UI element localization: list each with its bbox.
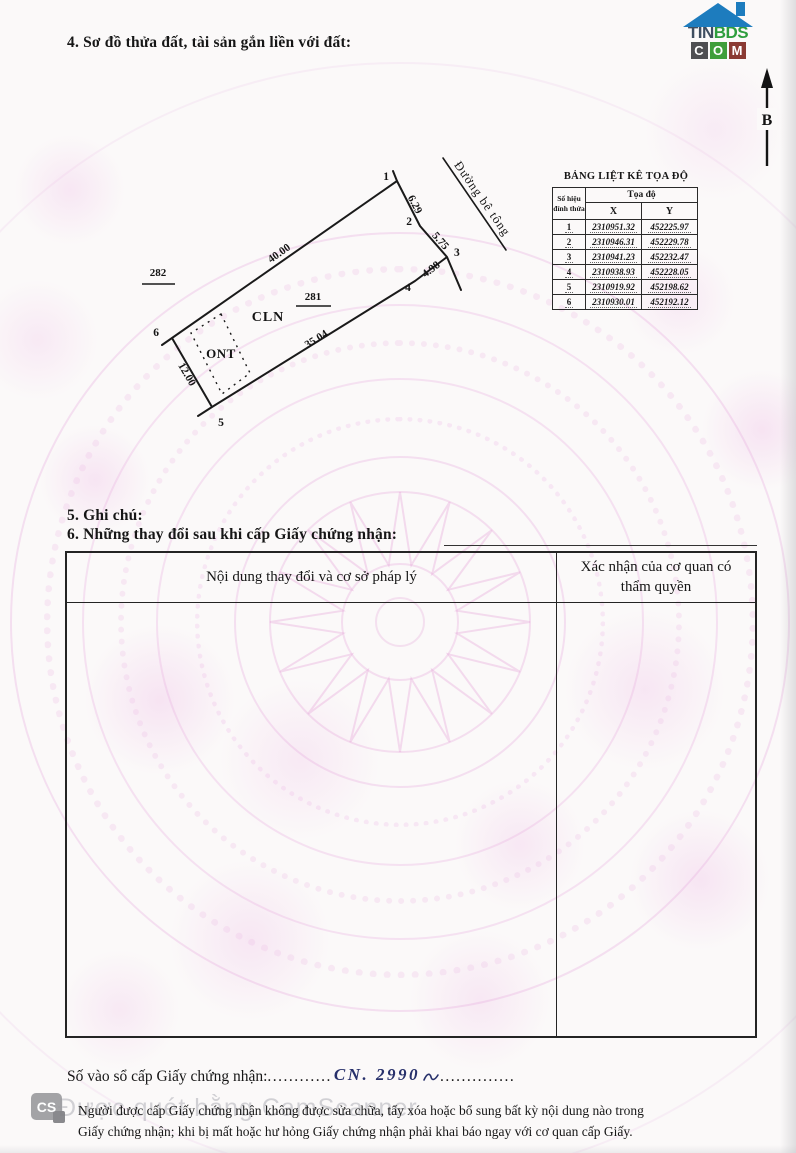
coord-cell: 452229.78 bbox=[648, 237, 690, 248]
registry-dots: ............ bbox=[267, 1068, 332, 1085]
coord-cell: 452228.05 bbox=[648, 267, 690, 278]
coord-row: 3 2310941.23 452232.47 bbox=[553, 250, 698, 265]
section6-rule bbox=[444, 545, 757, 546]
coord-table-title: BẢNG LIỆT KÊ TỌA ĐỘ bbox=[552, 171, 700, 182]
changes-confirm-cell bbox=[557, 603, 755, 1036]
land-type-ont: ONT bbox=[206, 346, 236, 361]
coord-cell: 2 bbox=[565, 237, 574, 248]
vertex-label-2: 2 bbox=[406, 216, 412, 228]
coord-header-vertex: Số hiệu đỉnh thửa bbox=[553, 188, 586, 220]
registry-value-handwritten: CN. 2990 bbox=[332, 1065, 422, 1084]
coord-row: 1 2310951.32 452225.97 bbox=[553, 220, 698, 235]
coord-row: 6 2310930.01 452192.12 bbox=[553, 295, 698, 310]
camscanner-badge: CS bbox=[31, 1093, 62, 1120]
road-label: Đường bê tông bbox=[451, 159, 513, 239]
plot-diagram: 1 2 3 4 5 6 6.29 5.75 4.98 35.04 12.00 4… bbox=[120, 150, 540, 450]
logo-letterboxes: C O M bbox=[681, 42, 755, 59]
coord-header-y: Y bbox=[642, 203, 698, 220]
registry-label: Số vào sổ cấp Giấy chứng nhận: bbox=[67, 1068, 267, 1085]
section4-title: 4. Sơ đồ thửa đất, tài sản gắn liền với … bbox=[67, 34, 351, 52]
coord-cell: 2310938.93 bbox=[590, 267, 637, 278]
vertex-label-5: 5 bbox=[218, 417, 224, 429]
scan-edge-shadow bbox=[780, 0, 796, 1153]
coord-row: 2 2310946.31 452229.78 bbox=[553, 235, 698, 250]
logo-letterbox-c: C bbox=[691, 42, 708, 59]
vertex-label-3: 3 bbox=[454, 247, 460, 259]
north-arrow: B bbox=[752, 66, 782, 172]
vertex-label-6: 6 bbox=[153, 327, 159, 339]
land-type-cln: CLN bbox=[252, 310, 285, 325]
section5-title: 5. Ghi chú: bbox=[67, 507, 143, 525]
coord-cell: 2310941.23 bbox=[590, 252, 637, 263]
coord-cell: 2310919.92 bbox=[590, 282, 637, 293]
coord-cell: 452232.47 bbox=[648, 252, 690, 263]
coord-cell: 2310951.32 bbox=[590, 222, 637, 233]
notice-text: Người được cấp Giấy chứng nhận không đượ… bbox=[78, 1101, 750, 1143]
arrowhead-icon bbox=[761, 68, 773, 88]
coord-header-x: X bbox=[586, 203, 642, 220]
coord-cell: 5 bbox=[565, 282, 574, 293]
scan-bottom-shadow bbox=[0, 1145, 796, 1153]
coord-row: 5 2310919.92 452198.62 bbox=[553, 280, 698, 295]
house-roof-icon bbox=[683, 2, 753, 27]
north-label: B bbox=[762, 112, 773, 129]
coord-row: 4 2310938.93 452228.05 bbox=[553, 265, 698, 280]
coord-cell: 4 bbox=[565, 267, 574, 278]
coord-cell: 452192.12 bbox=[648, 297, 690, 308]
road-line bbox=[443, 158, 506, 250]
changes-col-confirm-header: Xác nhận của cơ quan có thẩm quyền bbox=[557, 553, 755, 603]
logo-letterbox-m: M bbox=[729, 42, 746, 59]
vertex-label-1: 1 bbox=[383, 171, 389, 183]
coord-cell: 452198.62 bbox=[648, 282, 690, 293]
logo-letterbox-o: O bbox=[710, 42, 727, 59]
changes-table: Nội dung thay đổi và cơ sở pháp lý Xác n… bbox=[65, 551, 757, 1038]
edge-length-4-5: 35.04 bbox=[303, 328, 331, 352]
coord-cell: 1 bbox=[565, 222, 574, 233]
notice-line-2: Giấy chứng nhận; khi bị mất hoặc hư hỏng… bbox=[78, 1122, 750, 1143]
vertex-label-4: 4 bbox=[405, 282, 411, 294]
coord-cell: 2310946.31 bbox=[590, 237, 637, 248]
registry-line: Số vào sổ cấp Giấy chứng nhận:..........… bbox=[67, 1066, 515, 1086]
section6-title: 6. Những thay đổi sau khi cấp Giấy chứng… bbox=[67, 526, 397, 544]
edge-length-1-2: 6.29 bbox=[405, 193, 425, 216]
coord-header-coord: Tọa độ bbox=[586, 188, 698, 203]
certificate-page: 4. Sơ đồ thửa đất, tài sản gắn liền với … bbox=[0, 0, 796, 1153]
coordinate-table: BẢNG LIỆT KÊ TỌA ĐỘ Số hiệu đỉnh thửa Tọ… bbox=[552, 171, 700, 310]
registry-dots: .............. bbox=[440, 1068, 515, 1085]
coord-cell: 2310930.01 bbox=[590, 297, 637, 308]
tinbds-logo: TINBDS C O M bbox=[681, 2, 755, 66]
notice-line-1: Người được cấp Giấy chứng nhận không đượ… bbox=[78, 1101, 750, 1122]
adjacent-plot-282: 282 bbox=[150, 267, 167, 279]
edge-length-2-3: 5.75 bbox=[429, 230, 451, 253]
coord-cell: 3 bbox=[565, 252, 574, 263]
changes-content-cell bbox=[67, 603, 557, 1036]
edge-length-5-6: 12.00 bbox=[175, 361, 198, 389]
coord-cell: 452225.97 bbox=[648, 222, 690, 233]
plot-number-281: 281 bbox=[305, 291, 322, 303]
ink-flourish-icon bbox=[422, 1070, 440, 1088]
changes-col-content-header: Nội dung thay đổi và cơ sở pháp lý bbox=[67, 553, 557, 603]
coord-cell: 6 bbox=[565, 297, 574, 308]
